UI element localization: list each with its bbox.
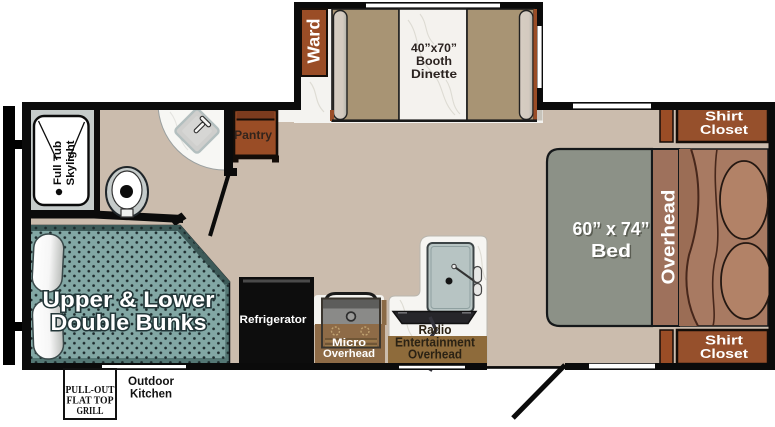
svg-text:Overhead: Overhead [658,190,679,285]
svg-text:Full Tub: Full Tub [52,141,64,185]
svg-text:Skylight: Skylight [65,140,77,185]
svg-text:Closet: Closet [700,122,749,137]
svg-text:Outdoor: Outdoor [128,376,175,388]
svg-text:60” x 74”: 60” x 74” [573,218,650,239]
svg-text:Booth: Booth [416,54,452,68]
svg-text:Bed: Bed [591,240,631,261]
svg-text:Upper & Lower: Upper & Lower [43,287,215,312]
svg-text:Kitchen: Kitchen [130,389,172,401]
svg-text:Dinette: Dinette [411,67,457,81]
svg-text:Overhead: Overhead [323,348,375,360]
svg-text:GRILL: GRILL [77,405,104,417]
svg-text:Overhead: Overhead [408,348,462,362]
svg-text:Refrigerator: Refrigerator [240,314,308,326]
svg-text:Double Bunks: Double Bunks [51,310,207,335]
svg-text:Ward: Ward [304,19,324,64]
svg-text:Closet: Closet [700,346,749,361]
svg-text:Pantry: Pantry [234,128,272,142]
svg-text:40”x70”: 40”x70” [411,41,457,55]
